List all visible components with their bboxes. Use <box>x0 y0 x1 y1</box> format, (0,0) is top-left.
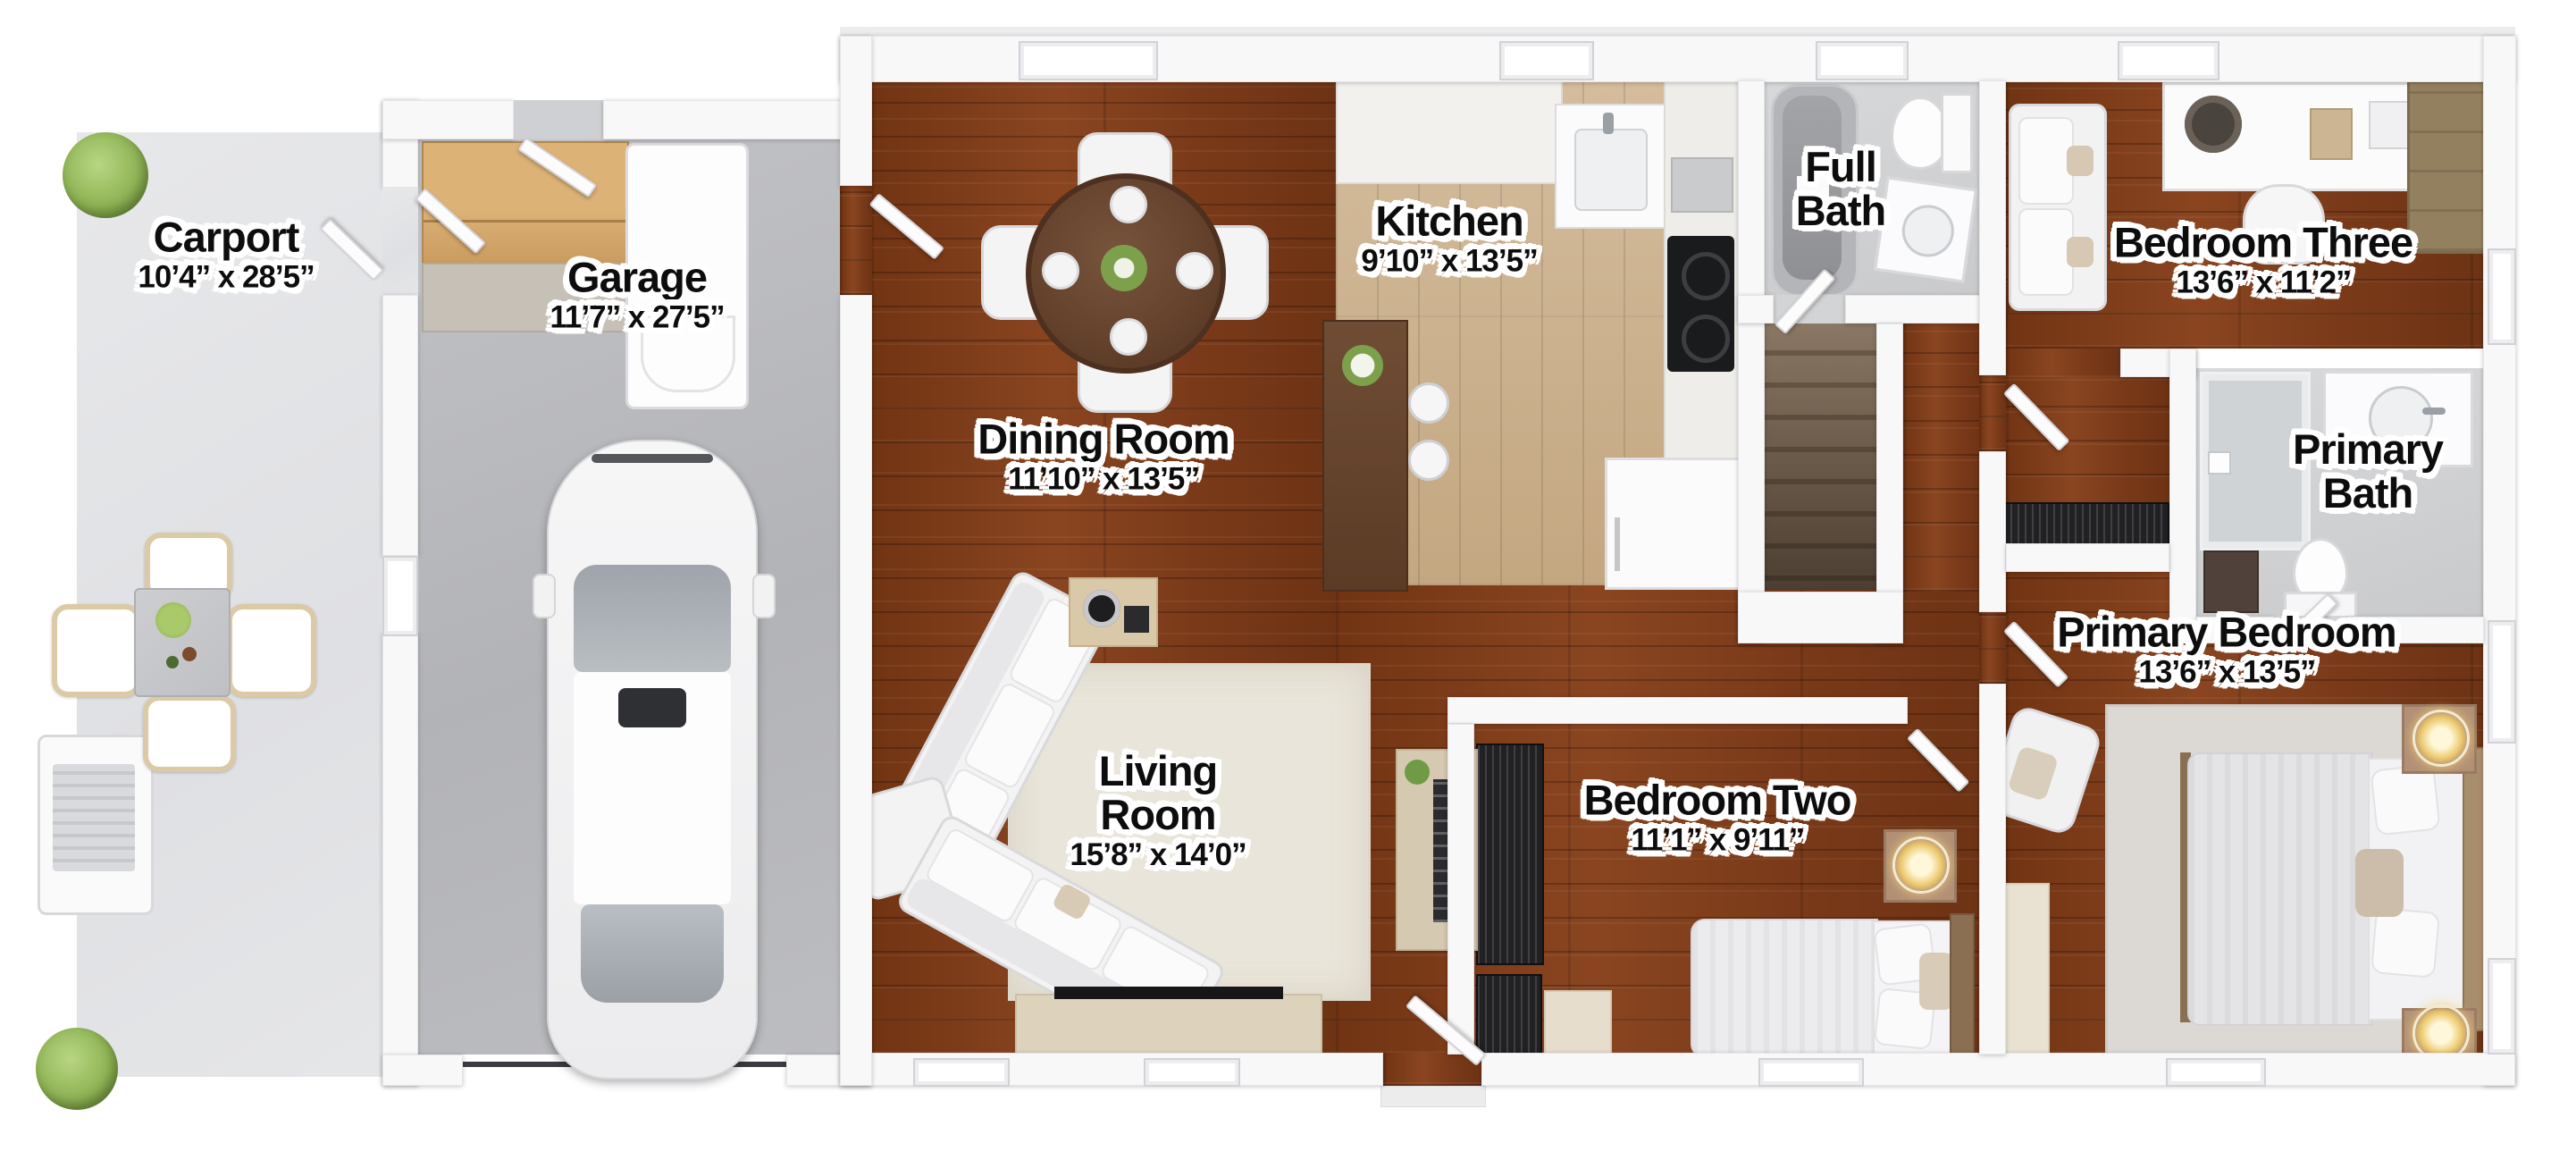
bar-stool <box>1408 382 1449 424</box>
decor-tray <box>1124 606 1149 633</box>
place-setting <box>1042 252 1079 290</box>
garage-house-door-floor <box>840 186 872 295</box>
centerpiece-flowers <box>1101 245 1147 291</box>
exterior-wall-left <box>840 36 872 186</box>
bar-stool <box>1408 440 1449 481</box>
hall-wall <box>1979 451 2006 612</box>
window <box>1758 1058 1864 1087</box>
car-rear-window <box>581 904 724 1003</box>
car-windshield <box>574 565 731 672</box>
window <box>1499 41 1594 80</box>
bottle <box>182 647 197 661</box>
window <box>2118 41 2219 80</box>
room-name: Carport <box>138 215 314 259</box>
car <box>547 440 758 1080</box>
car-mirror <box>533 574 556 618</box>
outdoor-chair <box>143 695 236 772</box>
room-name: Full Bath <box>1756 146 1926 233</box>
pillow <box>2370 763 2440 836</box>
bedroom-two-top-wall <box>1447 697 1908 724</box>
window <box>2488 620 2516 744</box>
room-label-kitchen: Kitchen 9’10” x 13’5” <box>1361 199 1537 279</box>
room-dims: 11’10” x 13’5” <box>978 461 1229 497</box>
wardrobe-cabinet <box>2407 80 2489 254</box>
shower-head <box>2208 451 2231 475</box>
room-dims: 13’6” x 11’2” <box>2114 265 2412 300</box>
window <box>913 1058 1010 1087</box>
desk-tray <box>2185 96 2242 153</box>
throw-pillow <box>2067 237 2094 267</box>
refrigerator <box>1605 458 1741 590</box>
roof-ledge <box>840 27 2515 36</box>
garage-wall <box>603 100 871 139</box>
room-name: Primary Bath <box>2252 428 2484 516</box>
primary-bedroom-top-wall <box>2006 543 2169 572</box>
window <box>1144 1058 1240 1087</box>
seat-cushion <box>2018 208 2074 296</box>
room-dims: 11’7” x 27’5” <box>550 299 724 335</box>
hall-wall <box>1979 684 2006 1055</box>
stairs-landing-wall <box>1738 592 1903 643</box>
stove-cooktop <box>1667 236 1734 372</box>
floor-plan: Carport 10’4” x 28’5” Garage 11’7” x 27’… <box>0 0 2576 1168</box>
window <box>1019 41 1158 80</box>
bedroom-two-left-wall <box>1447 724 1474 1055</box>
lamp <box>2412 710 2470 767</box>
bed-headboard <box>1950 913 1975 1058</box>
burner <box>1682 315 1730 363</box>
garage-wall <box>382 100 514 139</box>
printer <box>2369 101 2412 149</box>
porch-step <box>1380 1086 1486 1107</box>
desk-plant <box>1405 760 1430 785</box>
exterior-wall-bottom <box>1481 1053 2515 1086</box>
grill-panel <box>53 764 135 871</box>
bar-flowers <box>1342 345 1383 386</box>
room-dims: 9’10” x 13’5” <box>1361 243 1537 279</box>
breakfast-bar <box>1322 320 1408 592</box>
bedroom-three-floor-gap <box>2006 349 2120 379</box>
garage-wall <box>382 295 418 556</box>
accent-pillow <box>1919 953 1953 1010</box>
toilet-tank <box>1941 93 1973 173</box>
grill <box>38 735 154 915</box>
microwave <box>1671 157 1733 213</box>
car-grille <box>592 454 713 463</box>
seat-cushion <box>2018 117 2074 205</box>
fridge-handle <box>1615 517 1620 571</box>
chair-pillow <box>2007 745 2059 802</box>
garage-wall <box>382 633 418 1086</box>
closet-shelving <box>1476 974 1542 1056</box>
accent-pillow <box>2355 849 2404 917</box>
exterior-wall-left <box>840 295 872 1086</box>
burner <box>1682 252 1730 300</box>
tv <box>1054 987 1283 999</box>
desk-frame <box>2310 108 2353 160</box>
bath-cabinet <box>2203 550 2259 613</box>
throw-pillow <box>2067 146 2094 176</box>
clock <box>1083 590 1120 627</box>
bed-duvet <box>1691 919 1878 1058</box>
door-gap-floor <box>1979 375 2006 451</box>
room-label-bedroom-two: Bedroom Two 11’1” x 9’11” <box>1584 778 1851 858</box>
room-label-bedroom-three: Bedroom Three 13’6” x 11’2” <box>2114 221 2412 300</box>
room-label-living-room: Living Room 15’8” x 14’0” <box>1046 750 1270 873</box>
fruit-bowl <box>155 602 191 638</box>
storage-shelf <box>422 141 629 266</box>
room-name: Dining Room <box>978 417 1229 461</box>
hall-wall <box>1979 80 2006 375</box>
tv-console <box>1015 994 1322 1056</box>
kitchen-sink <box>1555 104 1666 229</box>
car-sunroof <box>618 688 686 727</box>
room-dims: 13’6” x 13’5” <box>2057 654 2396 690</box>
room-dims: 11’1” x 9’11” <box>1584 822 1851 858</box>
window <box>2488 248 2516 345</box>
carport-garage-door-opening <box>382 188 418 295</box>
bed-duvet <box>2187 752 2373 1026</box>
outdoor-chair <box>52 604 141 697</box>
window <box>2488 958 2516 1055</box>
full-bath-wall <box>1738 295 1774 324</box>
garage-back-door-opening <box>514 100 603 139</box>
outdoor-table <box>134 588 231 697</box>
dining-table <box>1026 173 1226 374</box>
loveseat <box>2009 104 2107 311</box>
car-mirror <box>752 574 776 618</box>
faucet <box>1603 113 1614 134</box>
dresser <box>1544 990 1612 1056</box>
room-name: Bedroom Two <box>1584 778 1851 822</box>
outdoor-chair <box>227 604 316 697</box>
pillow <box>2370 907 2440 979</box>
room-label-primary-bedroom: Primary Bedroom 13’6” x 13’5” <box>2057 610 2396 690</box>
place-setting <box>1176 252 1213 290</box>
garage-wall <box>382 1055 463 1086</box>
lamp <box>1892 836 1950 894</box>
room-label-full-bath: Full Bath <box>1756 146 1926 233</box>
kitchen-counter <box>1336 80 1563 184</box>
room-name: Primary Bedroom <box>2057 610 2396 654</box>
side-table <box>1069 577 1158 647</box>
room-label-primary-bath: Primary Bath <box>2252 428 2484 516</box>
faucet <box>2422 408 2446 415</box>
desk <box>2162 82 2423 191</box>
exterior-wall-right <box>2483 36 2516 1086</box>
room-label-garage: Garage 11’7” x 27’5” <box>550 256 724 335</box>
room-name: Garage <box>550 256 724 299</box>
sink-basin <box>1574 129 1648 211</box>
place-setting <box>1110 186 1147 223</box>
closet-shelving <box>1476 744 1544 965</box>
garage-window <box>382 556 418 636</box>
primary-bath-left-wall <box>2169 349 2196 643</box>
room-dims: 10’4” x 28’5” <box>138 259 314 295</box>
window <box>2166 1058 2266 1087</box>
plant-icon <box>63 132 148 218</box>
window <box>1816 41 1909 80</box>
door-gap-floor <box>1979 612 2006 684</box>
place-setting <box>1110 318 1147 356</box>
room-name: Kitchen <box>1361 199 1537 243</box>
hallway-floor <box>1903 324 1984 592</box>
room-label-carport: Carport 10’4” x 28’5” <box>138 215 314 295</box>
stairs <box>1765 324 1876 590</box>
room-name: Bedroom Three <box>2114 221 2412 265</box>
plant-icon <box>36 1028 118 1110</box>
room-dims: 15’8” x 14’0” <box>1046 837 1270 873</box>
bottle <box>166 656 179 668</box>
room-name: Living Room <box>1046 750 1270 837</box>
closet-shelving <box>2001 502 2169 547</box>
room-label-dining-room: Dining Room 11’10” x 13’5” <box>978 417 1229 497</box>
